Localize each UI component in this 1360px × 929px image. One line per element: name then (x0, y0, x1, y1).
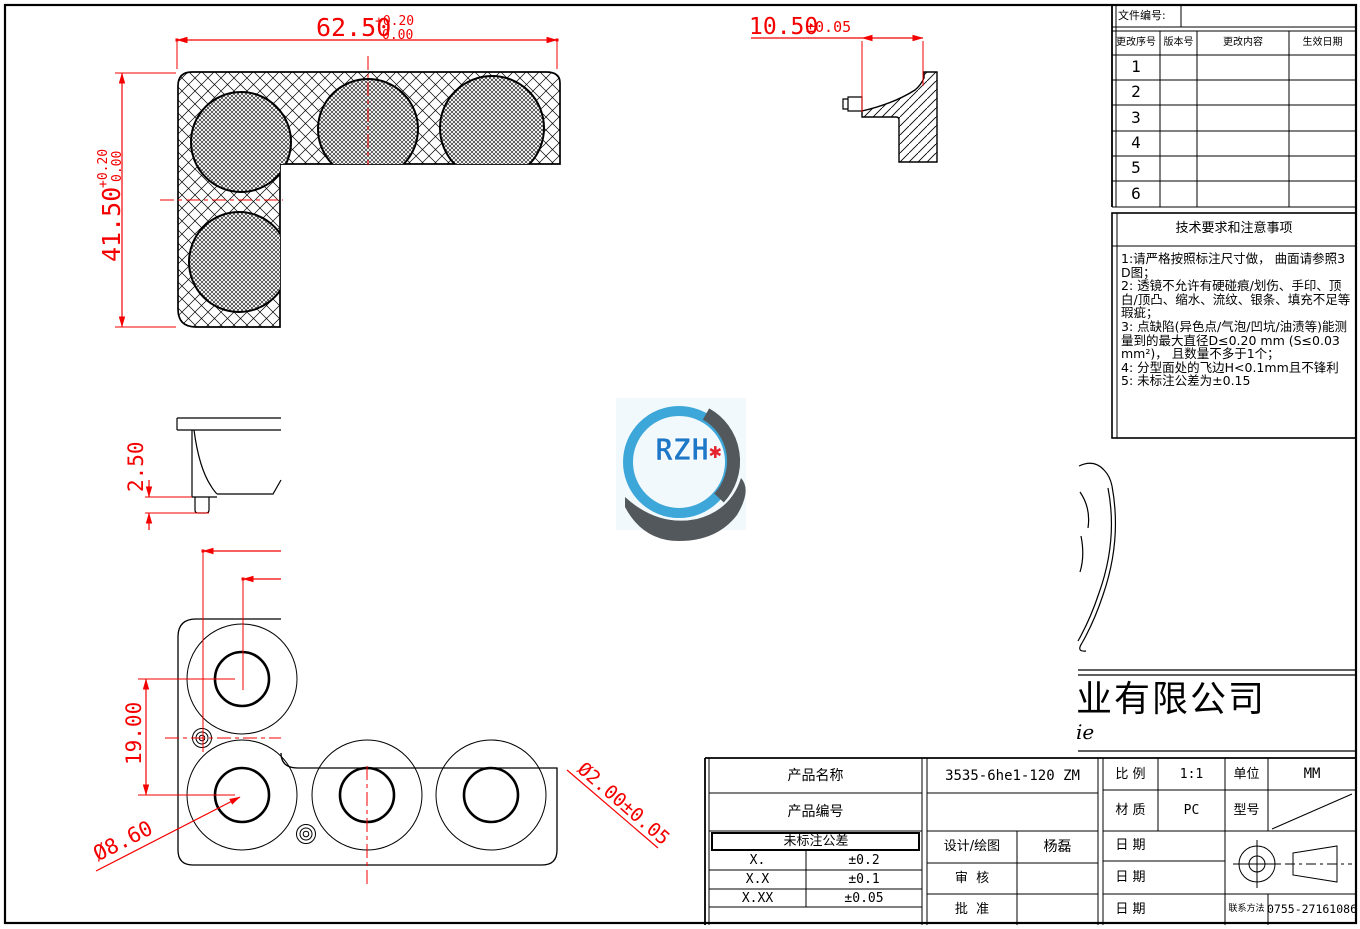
tolerance-digits: X.X (709, 871, 806, 889)
logo-star-icon: ✱ (709, 439, 722, 463)
product-name-label: 产品名称 (709, 759, 922, 793)
revision-row-number: 4 (1112, 131, 1160, 156)
revision-row-number: 3 (1112, 105, 1160, 131)
unit-label: 单位 (1225, 759, 1268, 790)
dim-width-tol-up: +0.20 (375, 14, 414, 29)
product-name-value: 3535-6he1-120 ZM (927, 759, 1098, 793)
pin-circles (193, 729, 316, 844)
detail-view: 10.50 ±0.05 (749, 14, 937, 162)
dim-pin-dia-value: Ø2.00±0.05 (573, 758, 674, 850)
dim-height-tol-up: +0.20 (96, 149, 111, 188)
dim-lens-dia-value: Ø8.60 (89, 816, 156, 866)
revision-header-content: 更改内容 (1197, 31, 1289, 55)
scale-label: 比 例 (1103, 759, 1158, 790)
tolerance-digits: X. (709, 851, 806, 870)
projection-symbol-icon (1233, 840, 1352, 888)
model-cell-diagonal (1272, 794, 1352, 829)
reviewer-label: 审 核 (927, 863, 1017, 894)
logo-text: RZH (655, 433, 709, 468)
tech-note: 4: 分型面处的飞边H<0.1mm且不锋利 (1121, 361, 1353, 375)
designer-label: 设计/绘图 (927, 831, 1017, 863)
dim-height-tol-low: 0.00 (110, 151, 125, 182)
tolerance-value: ±0.05 (806, 890, 922, 907)
model-label: 型号 (1225, 790, 1268, 831)
dim-pin-diameter: Ø2.00±0.05 (567, 758, 674, 850)
rzh-logo-watermark: RZH ✱ (616, 398, 746, 541)
contact-label: 联系方法 (1225, 894, 1268, 925)
plan-view: 19.00 Ø8.60 Ø2.00±0.05 (89, 550, 673, 889)
company-name-latin-partial: ie (1076, 720, 1156, 744)
tolerance-digits: X.XX (709, 890, 806, 907)
dim-section-width: 62.50 +0.20 0.00 (176, 13, 559, 69)
section-view: 62.50 +0.20 0.00 41.50 +0.20 0.00 (96, 13, 560, 327)
tech-note: 2: 透镜不允许有硬碰痕/划伤、手印、顶白/顶凸、缩水、流纹、银条、填充不足等瑕… (1121, 279, 1353, 320)
revision-header-date: 生效日期 (1289, 31, 1356, 55)
wall (192, 430, 281, 497)
tolerance-value: ±0.2 (806, 851, 922, 870)
dim-width-tol-low: 0.00 (382, 28, 413, 43)
designer-name: 杨磊 (1017, 831, 1098, 863)
revision-row-number: 6 (1112, 181, 1160, 207)
material-label: 材 质 (1103, 790, 1158, 831)
material-value: PC (1158, 790, 1225, 831)
date-label: 日 期 (1103, 831, 1158, 861)
dim-height-value: 41.50 (97, 187, 126, 262)
tolerance-value: ±0.1 (806, 871, 922, 889)
file-number-label: 文件编号: (1118, 6, 1180, 26)
dim-foot-height: 2.50 (124, 441, 209, 530)
dim-foot-value: 2.50 (124, 441, 148, 492)
scale-value: 1:1 (1158, 759, 1225, 790)
dim-lens-diameter: Ø8.60 (89, 797, 240, 871)
drawing-sheet: 62.50 +0.20 0.00 41.50 +0.20 0.00 10.50 … (0, 0, 1360, 929)
tech-note: 5: 未标注公差为±0.15 (1121, 374, 1353, 388)
unit-value: MM (1268, 759, 1356, 790)
dim-pitch-value: 19.00 (122, 702, 146, 765)
flange (177, 418, 281, 430)
approver-label: 批 准 (927, 894, 1017, 925)
dim-detail-tol: ±0.05 (806, 18, 851, 36)
revision-row-number: 2 (1112, 80, 1160, 105)
product-number-label: 产品编号 (709, 793, 922, 831)
revision-header-seq: 更改序号 (1112, 31, 1160, 55)
date-label: 日 期 (1103, 894, 1158, 925)
tech-note: 1:请严格按照标注尺寸做， 曲面请参照3D图； (1121, 252, 1353, 279)
tech-note: 3: 点缺陷(异色点/气泡/凹坑/油渍等)能测量到的最大直径D≤0.20 mm … (1121, 320, 1353, 361)
tolerance-title: 未标注公差 (713, 833, 919, 850)
tech-notes-body: 1:请严格按照标注尺寸做， 曲面请参照3D图； 2: 透镜不允许有硬碰痕/划伤、… (1121, 252, 1353, 436)
detail-body (862, 72, 937, 162)
revision-row-number: 5 (1112, 156, 1160, 181)
side-view: 2.50 (124, 418, 281, 530)
dim-detail-width: 10.50 ±0.05 (749, 14, 923, 112)
contact-value: 0755-27161086 (1268, 894, 1356, 925)
lens-circles (187, 624, 546, 850)
partial-profile-curve (1078, 463, 1115, 651)
tech-notes-title: 技术要求和注意事项 (1112, 214, 1356, 244)
date-label: 日 期 (1103, 861, 1158, 894)
gate-pin (843, 97, 862, 111)
foot (195, 497, 209, 513)
revision-row-number: 1 (1112, 55, 1160, 80)
revision-header-version: 版本号 (1160, 31, 1197, 55)
company-name-partial: 业有限公司 (1076, 678, 1356, 722)
